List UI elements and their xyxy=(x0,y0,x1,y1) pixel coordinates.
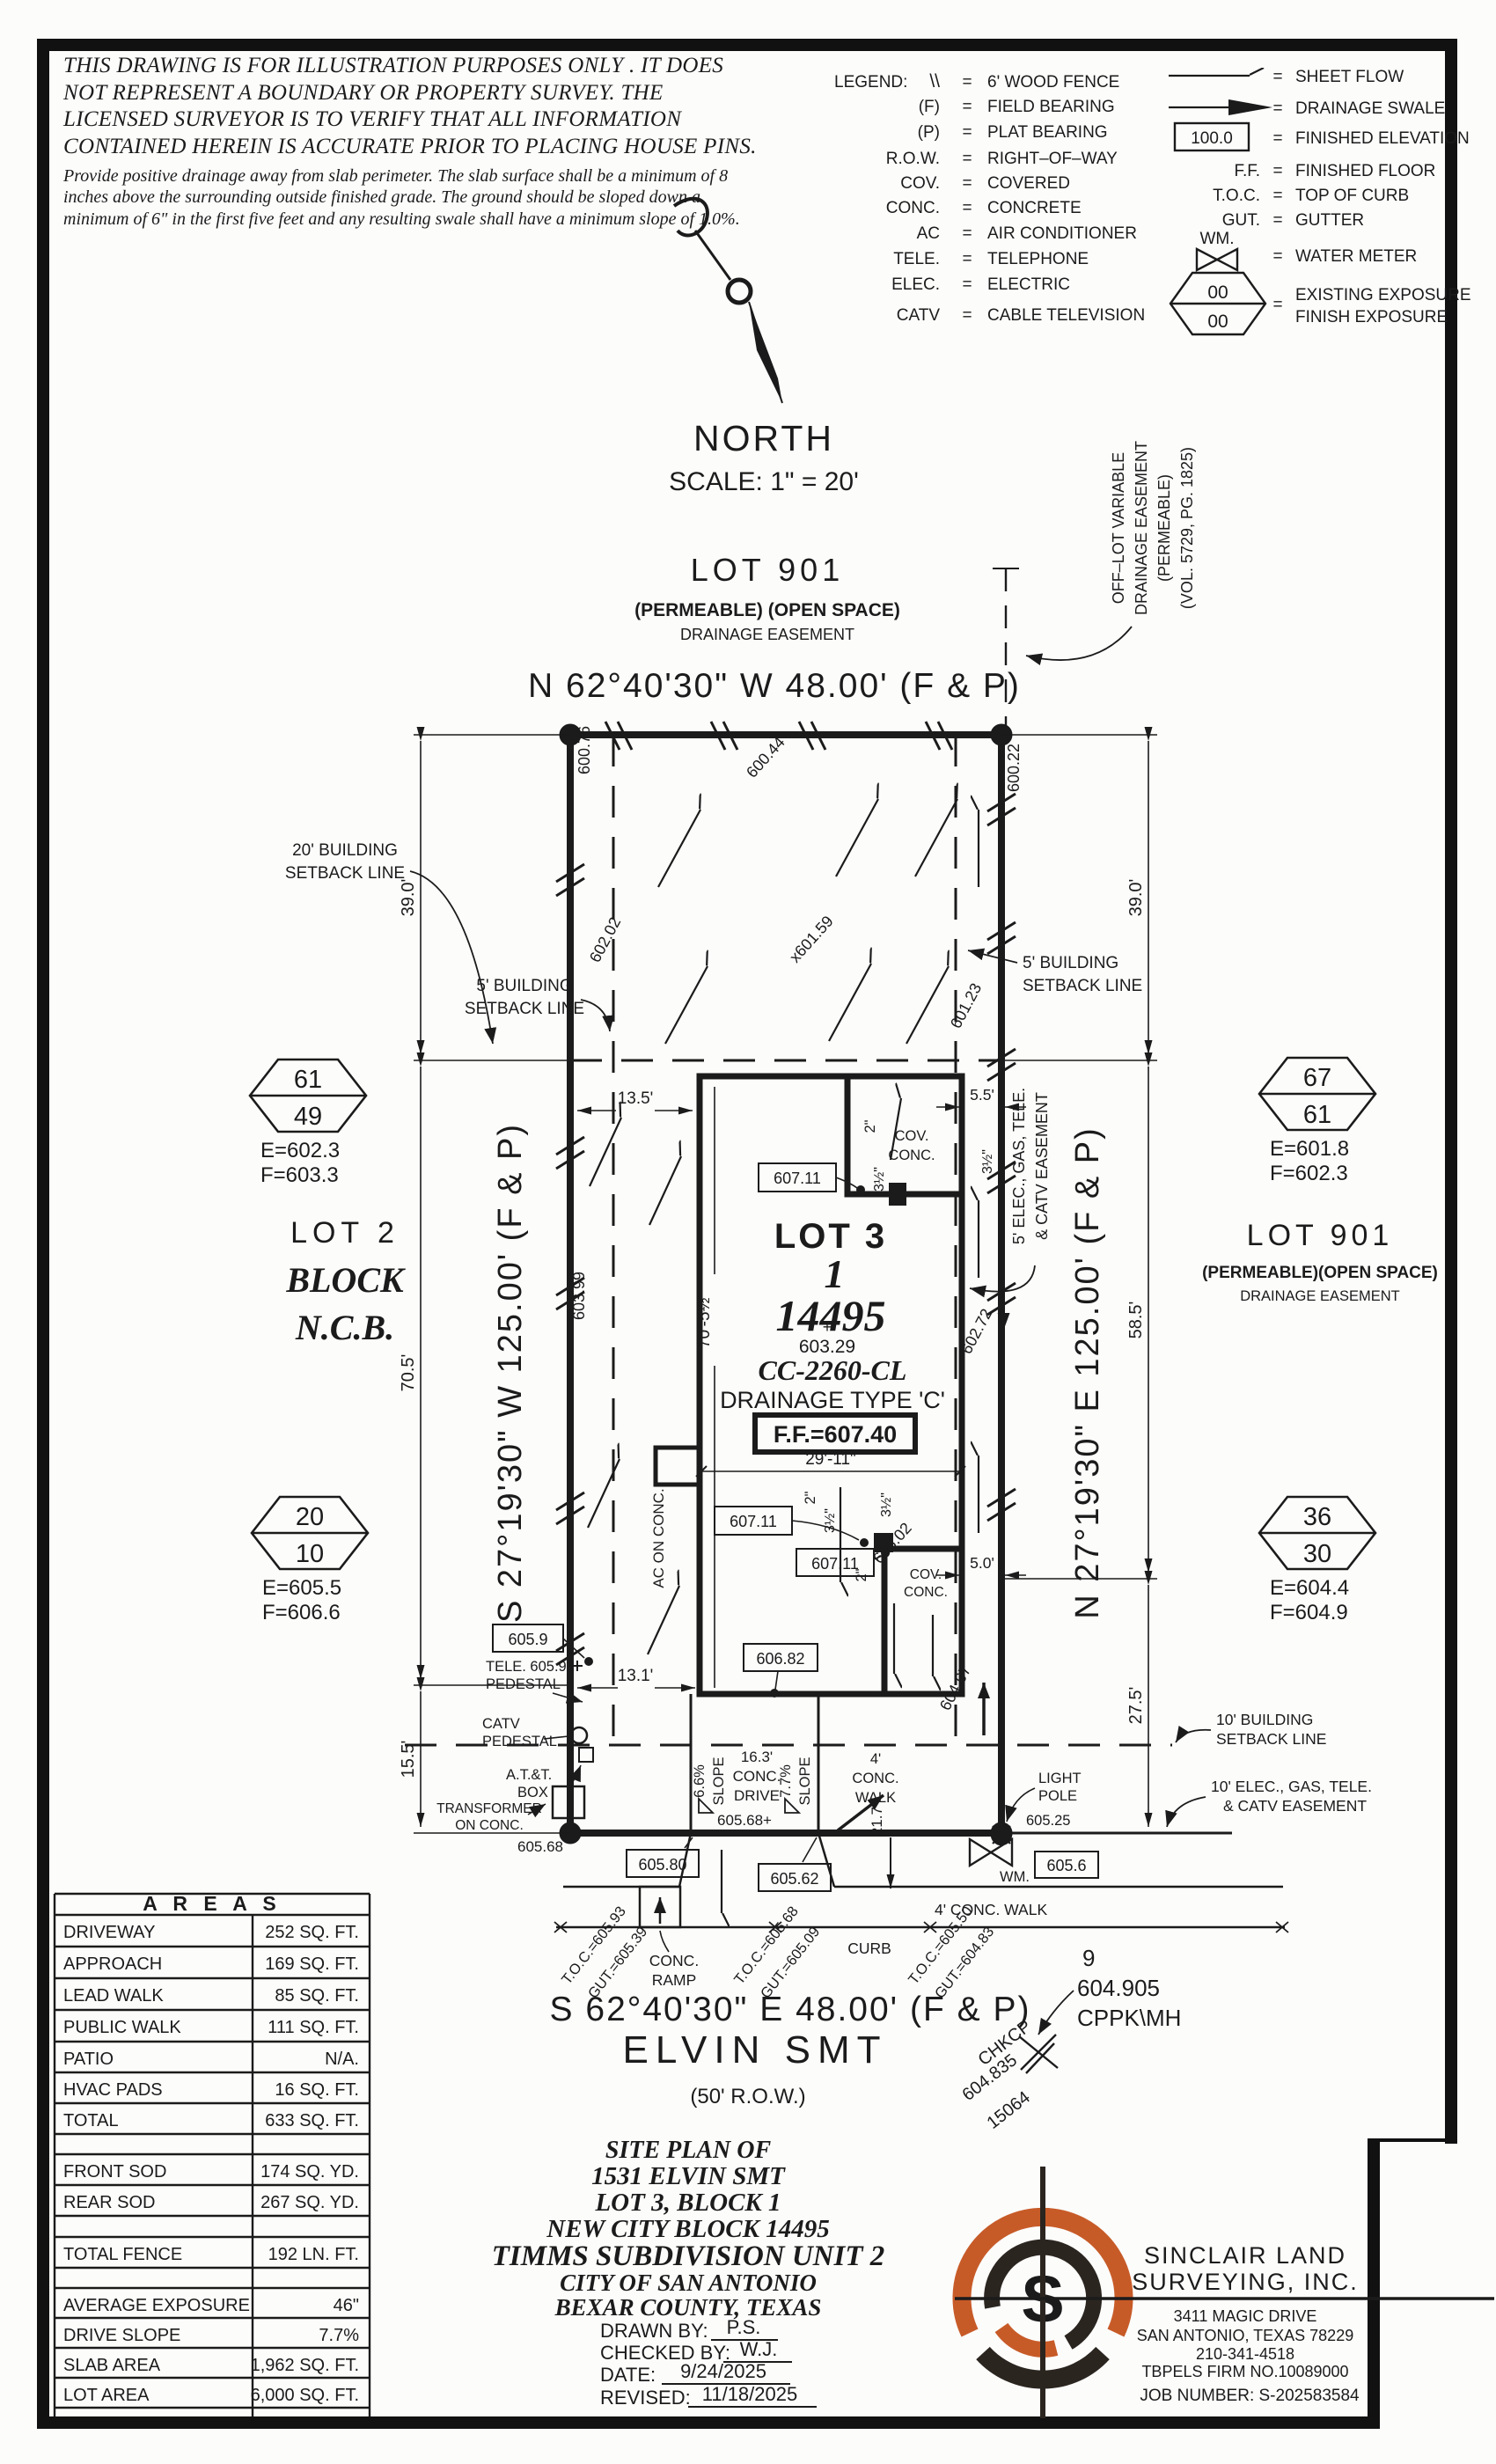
title-line2: 1531 ELVIN SMT xyxy=(591,2162,786,2190)
hex-20-10: 20 10 E=605.5 F=606.6 xyxy=(252,1497,368,1624)
porch-cov-label: COV. xyxy=(910,1567,942,1582)
light-pole-label1: LIGHT xyxy=(1038,1771,1082,1786)
setback-5-left-label: 5' BUILDING SETBACK LINE xyxy=(465,977,610,1031)
areas-table: A R E A S DRIVEWAY252 SQ. FT. APPROACH16… xyxy=(55,1892,370,2416)
equals-sign: = xyxy=(1272,129,1282,148)
easement-10-line2: & CATV EASEMENT xyxy=(1223,1797,1367,1815)
area-value: 252 SQ. FT. xyxy=(265,1923,359,1942)
legend-def: FINISH EXPOSURE xyxy=(1295,308,1448,326)
area-label: HVAC PADS xyxy=(63,2080,163,2100)
equals-sign: = xyxy=(962,174,972,193)
bearing-west-label: S 27°19'30" W 125.00' (F & P) xyxy=(492,1123,529,1623)
legend-term: CONC. xyxy=(886,199,940,217)
company-info: SINCLAIR LAND SURVEYING, INC. 3411 MAGIC… xyxy=(1132,2242,1360,2405)
ac-on-conc-label: AC ON CONC. xyxy=(650,1488,667,1588)
cov-conc-label: COV. xyxy=(895,1128,929,1144)
elev-x601-59: x601.59 xyxy=(786,913,837,966)
equals-sign: = xyxy=(1272,162,1282,180)
area-value: 16 SQ. FT. xyxy=(275,2080,359,2100)
easement-5-label: 5' ELEC., GAS, TELE. & CATV EASEMENT xyxy=(970,1088,1051,1329)
legend-term: F.F. xyxy=(1234,162,1260,180)
hex-f-value: F=606.6 xyxy=(262,1601,341,1624)
finished-floor-box: F.F.=607.40 xyxy=(755,1415,915,1452)
bearing-north-label: N 62°40'30" W 48.00' (F & P) xyxy=(528,667,1021,705)
legend-term: (F) xyxy=(919,98,940,116)
equals-sign: = xyxy=(962,224,972,243)
legend-term: COV. xyxy=(900,174,940,193)
legend-def: AIR CONDITIONER xyxy=(987,224,1137,243)
setback-10-label: 10' BUILDING SETBACK LINE xyxy=(1176,1711,1326,1748)
lot901-top-label: LOT 901 xyxy=(691,552,844,588)
equals-sign: = xyxy=(962,123,972,142)
title-signoff: DRAWN BY: P.S. CHECKED BY: W.J. DATE: 9/… xyxy=(600,2316,817,2409)
equals-sign: = xyxy=(962,250,972,268)
elev-600-44: 600.44 xyxy=(743,733,788,781)
wm-label: WM. xyxy=(1000,1869,1030,1885)
hex-e-value: E=604.4 xyxy=(1270,1576,1349,1600)
lot2-block-label: BLOCK xyxy=(285,1260,406,1300)
title-line7: BEXAR COUNTY, TEXAS xyxy=(554,2294,822,2321)
conc-ramp-label2: RAMP xyxy=(652,1971,697,1989)
equals-sign: = xyxy=(1272,68,1282,86)
light-pole-label2: POLE xyxy=(1038,1788,1077,1804)
elev-607-11-a: 607.11 xyxy=(774,1170,821,1187)
catv-pedestal-label1: CATV xyxy=(482,1716,520,1732)
offlot-line2: DRAINAGE EASEMENT xyxy=(1133,441,1150,615)
checked-by-value: W.J. xyxy=(740,2338,778,2360)
company-address1: 3411 MAGIC DRIVE xyxy=(1174,2307,1317,2325)
easement-10-label: 10' ELEC., GAS, TELE. & CATV EASEMENT xyxy=(1167,1778,1372,1827)
legend-def: ELECTRIC xyxy=(987,275,1070,294)
equals-sign: = xyxy=(1272,99,1282,118)
drawn-by-label: DRAWN BY: xyxy=(600,2320,708,2342)
finished-elevation-icon: 100.0 xyxy=(1175,123,1249,150)
equals-sign: = xyxy=(1272,296,1282,314)
area-value: 633 SQ. FT. xyxy=(265,2111,359,2130)
setback-5r-line2: SETBACK LINE xyxy=(1023,977,1142,995)
title-line3: LOT 3, BLOCK 1 xyxy=(594,2189,781,2217)
company-firm-number: TBPELS FIRM NO.10089000 xyxy=(1141,2363,1348,2380)
company-phone: 210-341-4518 xyxy=(1196,2345,1294,2363)
legend-def: 6' WOOD FENCE xyxy=(987,73,1119,92)
mh-number: 9 xyxy=(1082,1945,1095,1971)
easement-5-line2: & CATV EASEMENT xyxy=(1033,1092,1051,1240)
walk4-stack-3: WALK xyxy=(855,1790,896,1806)
area-value: 85 SQ. FT. xyxy=(275,1986,359,2006)
title-line6: CITY OF SAN ANTONIO xyxy=(560,2270,817,2296)
dim-39-left: 39.0' xyxy=(399,879,418,917)
lot901-right-sub1: (PERMEABLE)(OPEN SPACE) xyxy=(1202,1264,1438,1282)
hex-top-value: 36 xyxy=(1303,1503,1331,1531)
hex-f-value: F=602.3 xyxy=(1270,1162,1348,1185)
elev-605-25: 605.25 xyxy=(1026,1813,1070,1829)
elev-603-99: 603.99 xyxy=(570,1272,588,1320)
legend-title: LEGEND: xyxy=(834,73,907,92)
offlot-line3: (PERMEABLE) xyxy=(1155,474,1173,582)
offlot-line1: OFF–LOT VARIABLE xyxy=(1110,452,1127,604)
house-lot-label: LOT 3 xyxy=(774,1217,887,1256)
dim-39-right: 39.0' xyxy=(1126,879,1146,917)
wood-fence-icon: \\ xyxy=(929,71,940,92)
lot901-top-sub2: DRAINAGE EASEMENT xyxy=(680,626,854,643)
approach-elevation-boxes: 605.80 605.62 xyxy=(627,1837,831,1891)
lot2-label: LOT 2 xyxy=(290,1216,400,1250)
hex-f-value: F=604.9 xyxy=(1270,1601,1348,1624)
street-row-label: (50' R.O.W.) xyxy=(690,2085,805,2108)
area-value: 1,962 SQ. FT. xyxy=(251,2356,359,2375)
hex-top-value: 67 xyxy=(1303,1064,1331,1092)
dim-3half: 3½" xyxy=(980,1149,995,1174)
setback-5l-line1: 5' BUILDING xyxy=(476,977,572,995)
elev-601-23: 601.23 xyxy=(947,980,986,1031)
area-label: FRONT SOD xyxy=(63,2162,166,2182)
legend-term: T.O.C. xyxy=(1213,187,1260,205)
setback-5r-line1: 5' BUILDING xyxy=(1023,954,1118,972)
legend-def: FIELD BEARING xyxy=(987,98,1115,116)
legend-term: GUT. xyxy=(1222,211,1260,230)
revised-value: 11/18/2025 xyxy=(702,2383,797,2405)
transformer-label2: ON CONC. xyxy=(455,1818,524,1833)
area-label: PUBLIC WALK xyxy=(63,2018,181,2037)
area-label: DRIVE SLOPE xyxy=(63,2326,180,2345)
area-value: 174 SQ. YD. xyxy=(260,2162,359,2182)
offlot-easement-note: OFF–LOT VARIABLE DRAINAGE EASEMENT (PERM… xyxy=(993,441,1196,730)
elev-605-68: 605.68 xyxy=(517,1838,563,1855)
equals-sign: = xyxy=(1272,247,1282,266)
tele-pedestal-label: PEDESTAL xyxy=(486,1676,561,1692)
hex-bottom-value: 61 xyxy=(1303,1101,1331,1129)
legend-def: RIGHT–OF–WAY xyxy=(987,150,1118,168)
dim-21-7: 21.7' xyxy=(869,1804,885,1836)
porch-conc-label: CONC. xyxy=(904,1585,948,1600)
hex-e-value: E=601.8 xyxy=(1270,1137,1349,1161)
exposure-existing-sample: 00 xyxy=(1207,282,1228,303)
dim-5-5: 5.5' xyxy=(970,1086,994,1104)
setback-5l-line2: SETBACK LINE xyxy=(465,1000,584,1018)
drainage-swale-icon xyxy=(1169,99,1272,115)
elev-607-11-c: 607.11 xyxy=(811,1555,859,1573)
dim-27-5: 27.5' xyxy=(1126,1687,1146,1725)
legend-term: R.O.W. xyxy=(886,150,940,168)
areas-rows: DRIVEWAY252 SQ. FT. APPROACH169 SQ. FT. … xyxy=(63,1923,359,2405)
drive-label: DRIVE xyxy=(734,1787,780,1804)
legend-def: CABLE TELEVISION xyxy=(987,306,1145,325)
area-label: TOTAL FENCE xyxy=(63,2245,182,2264)
legend-def: CONCRETE xyxy=(987,199,1082,217)
drawn-by-value: P.S. xyxy=(727,2316,761,2338)
legend-def: WATER METER xyxy=(1295,247,1417,266)
north-label: NORTH xyxy=(693,418,834,458)
slope-left-label: SLOPE xyxy=(711,1756,727,1805)
curb-elevation-labels: T.O.C.=605.93 GUT.=605.39 T.O.C.=605.68 … xyxy=(559,1903,997,2001)
areas-title: A R E A S xyxy=(143,1892,282,1915)
hex-e-value: E=602.3 xyxy=(260,1139,340,1162)
att-box-label2: BOX xyxy=(517,1785,548,1800)
catv-pedestal-label2: PEDESTAL xyxy=(482,1734,557,1749)
date-label: DATE: xyxy=(600,2364,656,2386)
scale-label: SCALE: 1" = 20' xyxy=(669,467,859,496)
hex-61-49: 61 49 E=602.3 F=603.3 xyxy=(250,1060,366,1187)
cov-conc-label2: CONC. xyxy=(888,1148,935,1163)
hex-bottom-value: 10 xyxy=(296,1540,324,1568)
setback-20-line2: SETBACK LINE xyxy=(285,864,405,883)
company-address2: SAN ANTONIO, TEXAS 78229 xyxy=(1137,2327,1353,2344)
legend-def: GUTTER xyxy=(1295,211,1364,230)
dim-58-5: 58.5' xyxy=(1126,1302,1146,1339)
legend-def: SHEET FLOW xyxy=(1295,68,1404,86)
area-value: 267 SQ. YD. xyxy=(260,2193,359,2212)
easement-5-line1: 5' ELEC., GAS, TELE. xyxy=(1010,1088,1028,1244)
elev-605-80: 605.80 xyxy=(638,1856,686,1874)
company-job-number: JOB NUMBER: S-202583584 xyxy=(1140,2387,1360,2405)
legend-def: PLAT BEARING xyxy=(987,123,1108,142)
hex-top-value: 61 xyxy=(294,1066,322,1094)
setback-20-label: 20' BUILDING SETBACK LINE xyxy=(285,841,493,1044)
hex-bottom-value: 30 xyxy=(1303,1540,1331,1568)
elev-604-67: 604.67 xyxy=(936,1662,975,1713)
chkcp-id: 15064 xyxy=(984,2087,1034,2133)
elev-602-02: 602.02 xyxy=(586,914,625,965)
walk4-stack-1: 4' xyxy=(870,1751,881,1767)
equals-sign: = xyxy=(962,150,972,168)
area-value: 6,000 SQ. FT. xyxy=(251,2386,359,2405)
equals-sign: = xyxy=(962,98,972,116)
mh-id: CPPK\MH xyxy=(1077,2005,1181,2031)
hex-top-value: 20 xyxy=(296,1503,324,1531)
north-arrow-icon xyxy=(674,199,782,403)
driveway xyxy=(554,1694,1288,1932)
legend-def: DRAINAGE SWALE xyxy=(1295,99,1445,118)
title-block: SITE PLAN OF 1531 ELVIN SMT LOT 3, BLOCK… xyxy=(492,2137,885,2321)
revised-label: REVISED: xyxy=(600,2387,691,2409)
setback-20-line1: 20' BUILDING xyxy=(292,841,398,860)
title-line4: NEW CITY BLOCK 14495 xyxy=(546,2215,829,2243)
exposure-hex-icon: 00 00 xyxy=(1170,273,1265,334)
exposure-finish-sample: 00 xyxy=(1207,312,1228,332)
bearing-south-label: S 62°40'30" E 48.00' (F & P) xyxy=(550,1991,1031,2028)
house-ff-label: F.F.=607.40 xyxy=(774,1421,897,1448)
area-value: N/A. xyxy=(325,2050,359,2069)
area-value: 111 SQ. FT. xyxy=(268,2018,359,2037)
house-drainage-type: DRAINAGE TYPE 'C' xyxy=(720,1387,945,1413)
equals-sign: = xyxy=(962,199,972,217)
dim-15-5: 15.5' xyxy=(399,1741,418,1778)
area-label: AVERAGE EXPOSURE xyxy=(63,2296,250,2315)
dim-5-0: 5.0' xyxy=(970,1554,994,1572)
legend-term: (P) xyxy=(918,123,940,142)
area-value: 46" xyxy=(334,2296,359,2315)
site-plan-drawing: LEGEND: \\ (F) (P) R.O.W. COV. CONC. AC … xyxy=(0,0,1496,2464)
equals-sign: = xyxy=(1272,211,1282,230)
walk4-label: 4' CONC. WALK xyxy=(935,1901,1047,1918)
area-label: LOT AREA xyxy=(63,2386,150,2405)
lot901-right-label: LOT 901 xyxy=(1247,1219,1394,1252)
elev-605-68-plus: 605.68+ xyxy=(717,1812,772,1829)
date-value: 9/24/2025 xyxy=(680,2360,766,2382)
ramp-leader xyxy=(660,1931,669,1952)
elev-600-22: 600.22 xyxy=(1005,744,1023,792)
bearing-east-label: N 27°19'30" E 125.00' (F & P) xyxy=(1069,1126,1106,1619)
hex-e-value: E=605.5 xyxy=(262,1576,341,1600)
hex-f-value: F=603.3 xyxy=(260,1163,339,1187)
elev-605-9: 605.9 xyxy=(508,1631,547,1648)
benchmark-notes: 9 604.905 CPPK\MH CHKCP 604.835 15064 xyxy=(959,1945,1182,2133)
slope-right-label: SLOPE xyxy=(797,1756,813,1805)
legend-term: TELE. xyxy=(893,250,940,268)
area-label: REAR SOD xyxy=(63,2193,155,2212)
company-name-line2: SURVEYING, INC. xyxy=(1132,2269,1359,2295)
legend-def: TOP OF CURB xyxy=(1295,187,1409,205)
area-value: 169 SQ. FT. xyxy=(265,1954,359,1974)
toc-label: T.O.C.=605.93 xyxy=(559,1903,629,1987)
equals-sign: = xyxy=(962,73,972,92)
att-box-icon xyxy=(579,1748,593,1762)
title-line5: TIMMS SUBDIVISION UNIT 2 xyxy=(492,2240,885,2272)
water-meter-icon xyxy=(1197,249,1237,270)
checkpoint-cross-icon xyxy=(1019,2035,1058,2073)
legend-def: COVERED xyxy=(987,174,1070,193)
lot901-right-sub2: DRAINAGE EASEMENT xyxy=(1240,1288,1400,1304)
spot-plus-mark: + xyxy=(823,1318,832,1336)
company-name-line1: SINCLAIR LAND xyxy=(1144,2242,1346,2269)
house-block-number: 1 xyxy=(825,1251,845,1296)
equals-sign: = xyxy=(962,275,972,294)
survey-sheet: THIS DRAWING IS FOR ILLUSTRATION PURPOSE… xyxy=(0,0,1496,2464)
dim-13-5: 13.5' xyxy=(618,1089,654,1108)
elev-605-6: 605.6 xyxy=(1046,1857,1086,1874)
legend-def: FINISHED FLOOR xyxy=(1295,162,1435,180)
legend-def: FINISHED ELEVATION xyxy=(1295,129,1470,148)
water-meter-plan-icon xyxy=(970,1839,1012,1866)
street-name-label: ELVIN SMT xyxy=(622,2028,887,2072)
area-label: APPROACH xyxy=(63,1954,162,1974)
legend: LEGEND: \\ (F) (P) R.O.W. COV. CONC. AC … xyxy=(834,68,1471,334)
legend-term: CATV xyxy=(897,306,941,325)
dim-70-5: 70.5' xyxy=(399,1354,418,1392)
offlot-line4: (VOL. 5729, PG. 1825) xyxy=(1178,447,1196,609)
curb-label: CURB xyxy=(847,1940,891,1957)
setback-10-line2: SETBACK LINE xyxy=(1216,1730,1326,1748)
att-box-label1: A.T.&T. xyxy=(506,1767,552,1783)
equals-sign: = xyxy=(962,306,972,325)
area-label: LEAD WALK xyxy=(63,1986,164,2006)
mh-elevation: 604.905 xyxy=(1077,1975,1160,2001)
elev-606-82: 606.82 xyxy=(756,1650,804,1668)
hex-36-30: 36 30 E=604.4 F=604.9 xyxy=(1259,1497,1375,1624)
area-label: PATIO xyxy=(63,2050,114,2069)
house-plan-id: CC-2260-CL xyxy=(759,1354,907,1386)
walk4-stack-2: CONC. xyxy=(852,1771,898,1786)
hex-bottom-value: 49 xyxy=(294,1103,322,1131)
legend-def: TELEPHONE xyxy=(987,250,1089,268)
equals-sign: = xyxy=(1272,187,1282,205)
dim-3half: 3½" xyxy=(879,1492,894,1517)
hex-67-61: 67 61 E=601.8 F=602.3 xyxy=(1259,1058,1375,1185)
toc-label: T.O.C.=605.68 xyxy=(731,1903,802,1987)
transformer-label1: TRANSFORMER xyxy=(436,1801,542,1816)
area-value: 192 LN. FT. xyxy=(268,2245,359,2264)
swale-2in-label: 2" xyxy=(862,1119,878,1133)
area-label: DRIVEWAY xyxy=(63,1923,155,1942)
legend-term: ELEC. xyxy=(891,275,940,294)
slope-left-pct: 6.6% xyxy=(692,1764,708,1798)
lot2-ncb-label: N.C.B. xyxy=(295,1308,394,1347)
house-2in-label: 2" xyxy=(803,1491,818,1504)
tele-pedestal-elev: TELE. 605.91 xyxy=(486,1659,575,1675)
easement-10-line1: 10' ELEC., GAS, TELE. xyxy=(1211,1778,1372,1795)
legend-def: EXISTING EXPOSURE xyxy=(1295,286,1471,304)
setback-10-line1: 10' BUILDING xyxy=(1216,1711,1313,1728)
elev-605-62: 605.62 xyxy=(770,1870,818,1888)
finished-elevation-sample: 100.0 xyxy=(1191,129,1233,148)
drive-conc-label: CONC. xyxy=(733,1768,781,1785)
legend-term: AC xyxy=(917,224,940,243)
light-pole-group: LIGHT POLE 605.25 WM. 605.6 xyxy=(970,1771,1098,1885)
setback-5-right-label: 5' BUILDING SETBACK LINE xyxy=(968,950,1142,995)
conc-ramp-label1: CONC. xyxy=(649,1952,699,1969)
area-value: 7.7% xyxy=(319,2326,359,2345)
legend-term: WM. xyxy=(1199,230,1234,248)
elev-607-11-b: 607.11 xyxy=(730,1513,777,1530)
dim-13-1: 13.1' xyxy=(618,1667,654,1685)
area-label: TOTAL xyxy=(63,2111,119,2130)
dim-3half: 3½" xyxy=(872,1167,887,1192)
drive-width-label: 16.3' xyxy=(741,1749,773,1765)
title-line1: SITE PLAN OF xyxy=(605,2137,772,2164)
elev-600-76: 600.76 xyxy=(576,726,593,774)
lot901-top-sub1: (PERMEABLE) (OPEN SPACE) xyxy=(634,600,900,620)
area-label: SLAB AREA xyxy=(63,2356,161,2375)
